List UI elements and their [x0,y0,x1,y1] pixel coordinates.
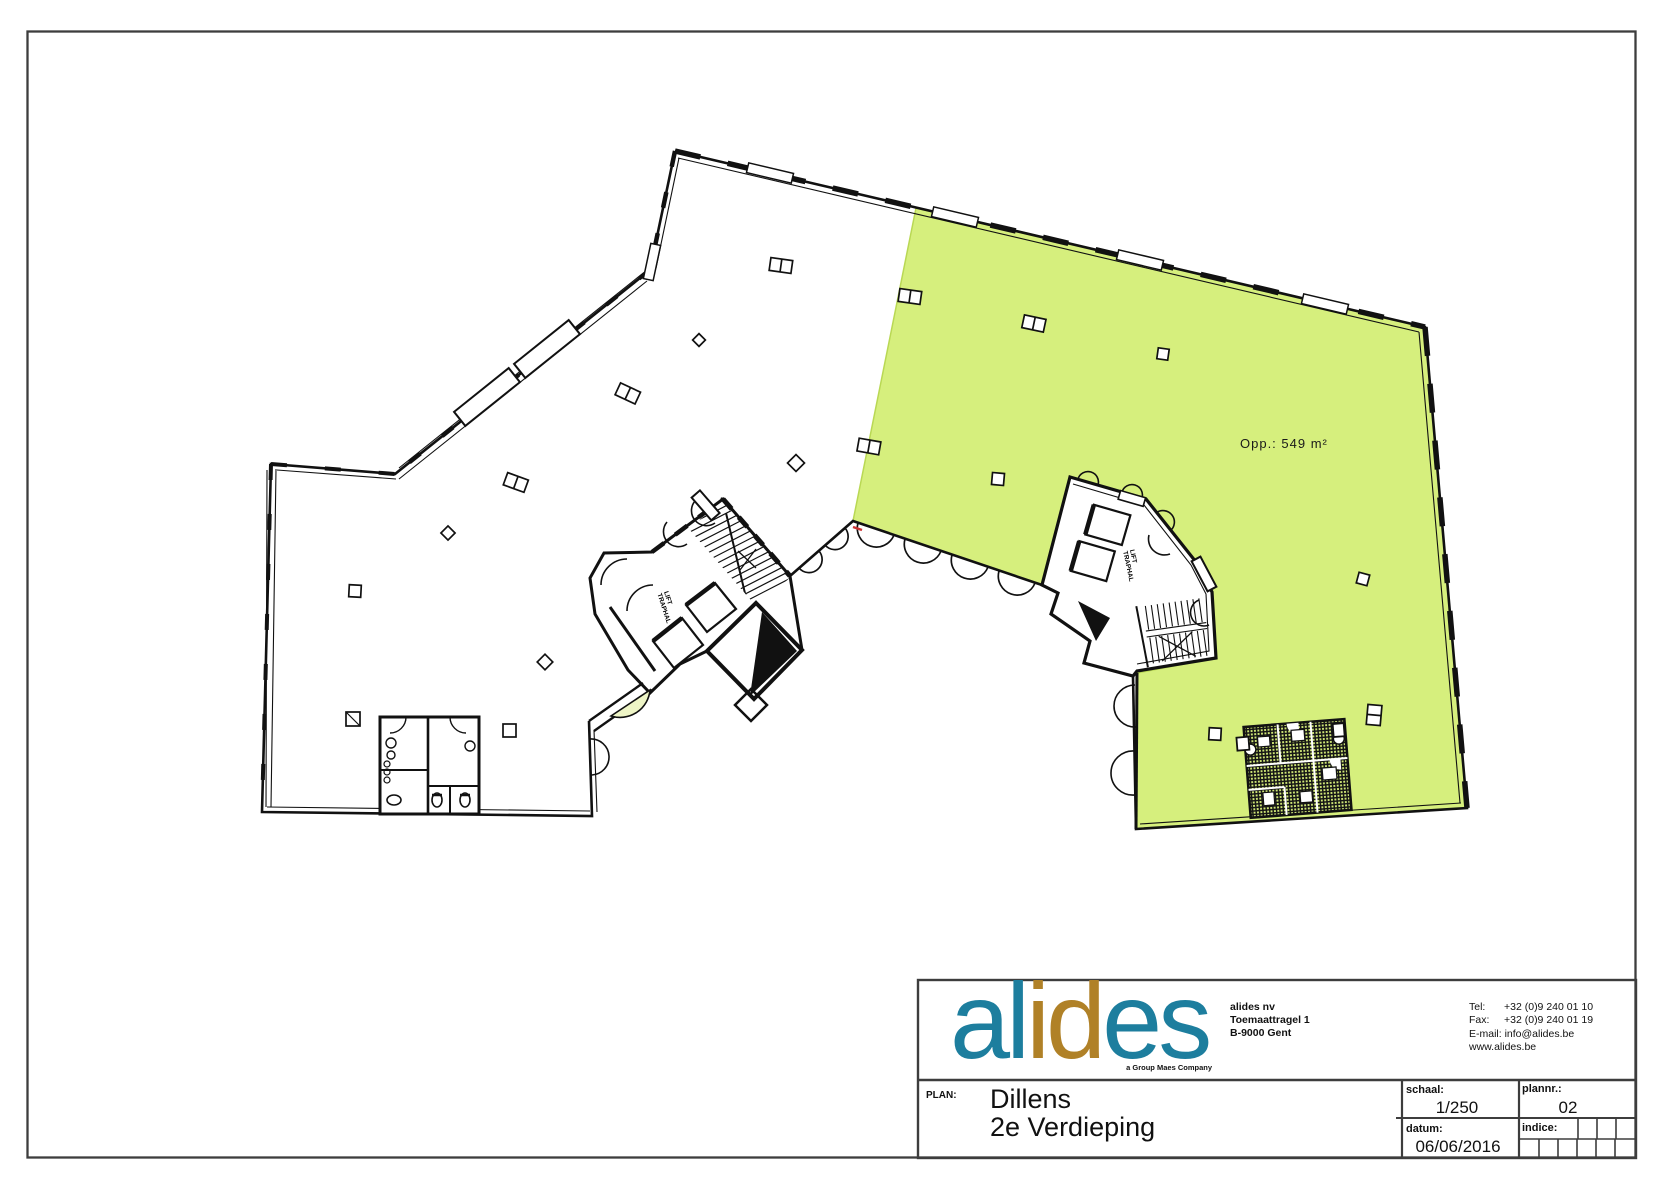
svg-text:www.alides.be: www.alides.be [1468,1041,1536,1053]
svg-text:schaal:: schaal: [1406,1084,1444,1096]
svg-text:Opp.: 549 m²: Opp.: 549 m² [1240,436,1328,451]
svg-text:B-9000 Gent: B-9000 Gent [1230,1027,1292,1039]
svg-text:2e Verdieping: 2e Verdieping [990,1112,1155,1142]
svg-text:alides nv: alides nv [1230,1001,1275,1013]
svg-text:datum:: datum: [1406,1123,1443,1135]
svg-text:Toemaattragel 1: Toemaattragel 1 [1230,1014,1310,1026]
svg-text:+32 (0)9 240 01 19: +32 (0)9 240 01 19 [1504,1014,1593,1026]
svg-text:1/250: 1/250 [1436,1098,1479,1117]
svg-text:06/06/2016: 06/06/2016 [1415,1137,1500,1156]
svg-text:+32 (0)9 240 01 10: +32 (0)9 240 01 10 [1504,1001,1593,1013]
svg-text:Fax:: Fax: [1469,1014,1489,1026]
svg-text:E-mail: info@alides.be: E-mail: info@alides.be [1469,1028,1574,1040]
svg-text:a Group Maes Company: a Group Maes Company [1126,1063,1213,1072]
svg-text:02: 02 [1559,1098,1578,1117]
svg-text:PLAN:: PLAN: [926,1090,957,1101]
svg-text:plannr.:: plannr.: [1522,1083,1562,1095]
svg-text:Tel:: Tel: [1469,1001,1485,1013]
svg-text:indice:: indice: [1522,1122,1557,1134]
svg-text:Dillens: Dillens [990,1084,1071,1114]
